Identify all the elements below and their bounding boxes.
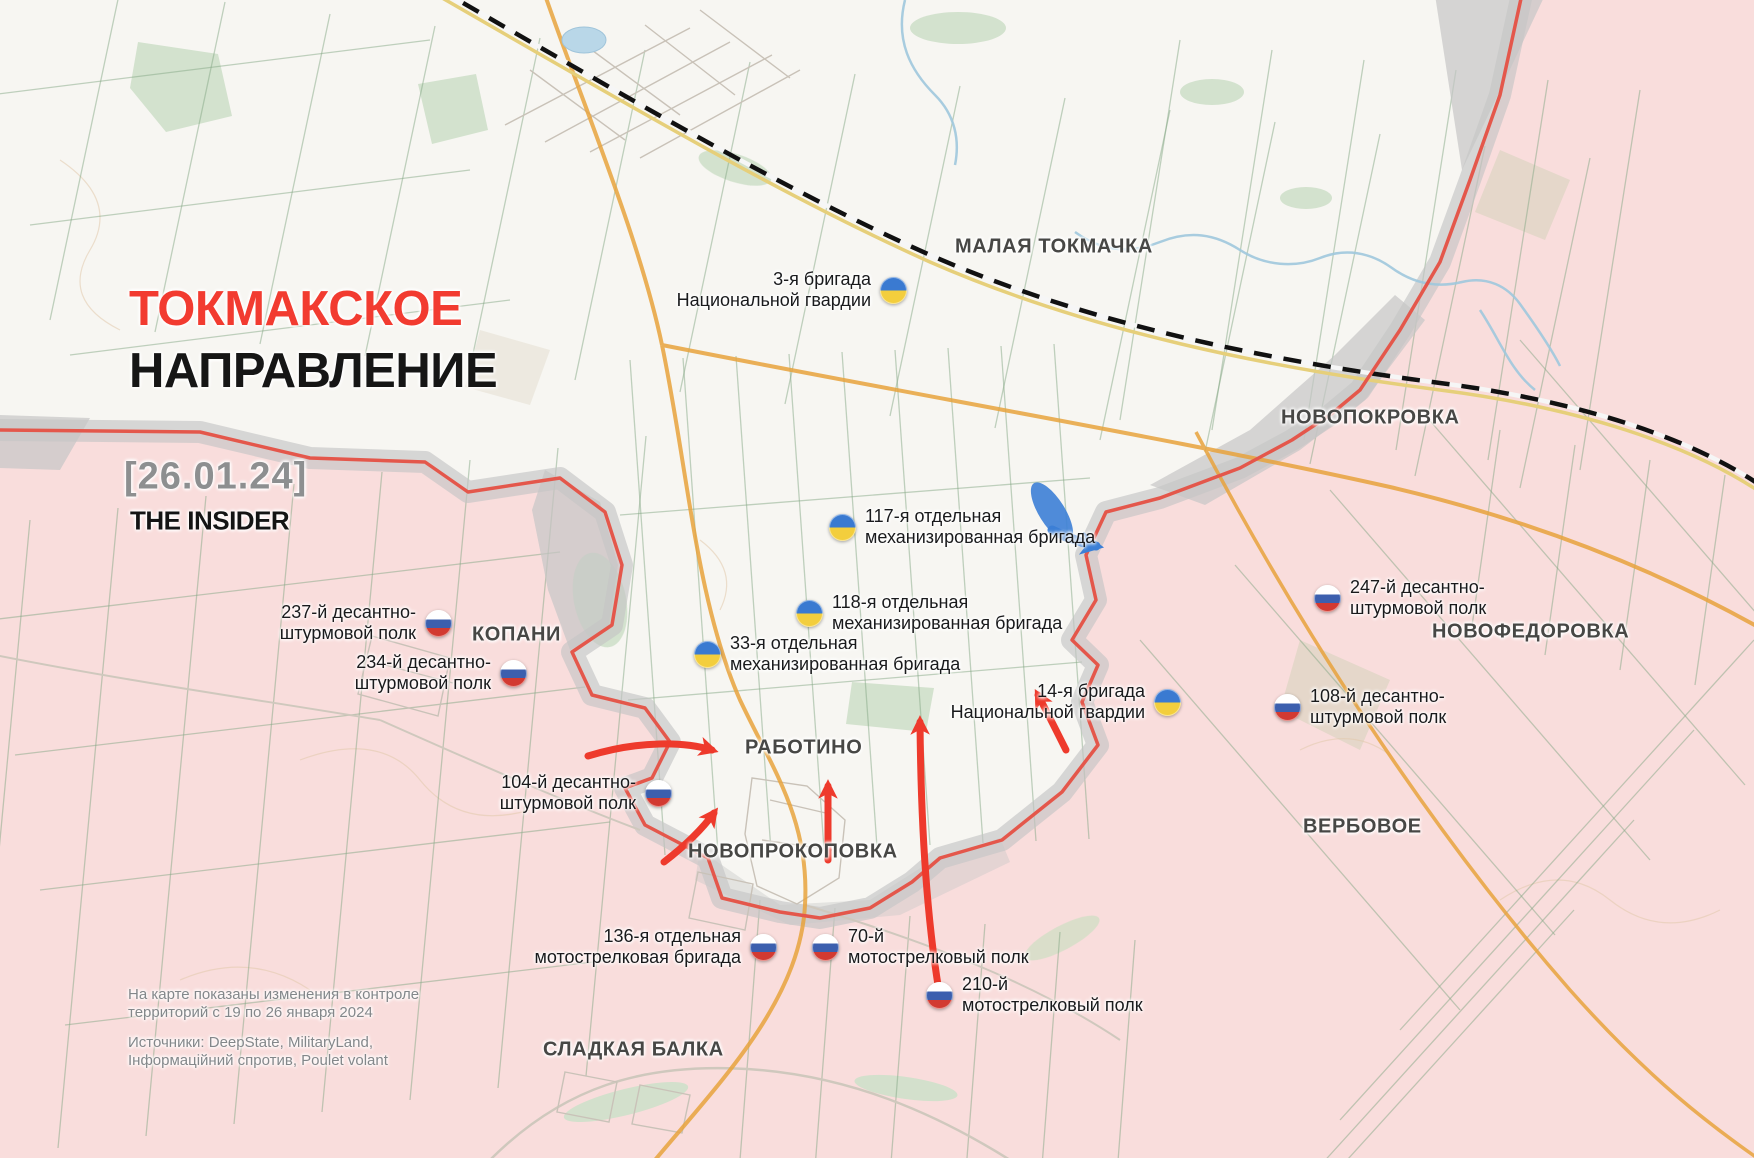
unit-label-14-brigade-national-guard: 14-я бригадаНациональной гвардии [951,681,1181,723]
russia-flag-icon [425,610,452,637]
footer-note-line2: территорий с 19 по 26 января 2024 [128,1004,419,1022]
ukraine-flag-icon [1154,689,1181,716]
field-line [1120,40,1180,420]
unit-label-210-motor-rifle-regiment: 210-ймотострелковый полк [926,974,1143,1016]
unit-label-237-air-assault-regiment: 237-й десантно-штурмовой полк [280,602,452,644]
publisher-logo: THE INSIDER [130,506,289,537]
town-label: СЛАДКАЯ БАЛКА [543,1039,724,1062]
unit-label-text: 117-я отдельнаямеханизированная бригада [865,506,1095,548]
footer-sources-line1: Источники: DeepState, MilitaryLand, [128,1034,419,1052]
unit-label-33-mechanized-brigade: 33-я отдельнаямеханизированная бригада [694,633,960,675]
war-map-tokmak-direction: ТОКМАКСКОЕ НАПРАВЛЕНИЕ [26.01.24] THE IN… [0,0,1754,1158]
unit-label-3-brigade-national-guard: 3-я бригадаНациональной гвардии [677,269,907,311]
unit-label-text: 210-ймотострелковый полк [962,974,1143,1016]
field-line [680,62,750,392]
russia-flag-icon [1314,585,1341,612]
map-title-line1: ТОКМАКСКОЕ [129,278,497,340]
unit-label-70-motor-rifle-regiment: 70-ймотострелковый полк [812,926,1029,968]
field-line [683,358,718,853]
unit-label-104-air-assault-regiment: 104-й десантно-штурмовой полк [500,772,672,814]
russia-flag-icon [1274,694,1301,721]
ukraine-flag-icon [796,600,823,627]
unit-label-text: 33-я отдельнаямеханизированная бригада [730,633,960,675]
russia-flag-icon [926,982,953,1009]
unit-label-136-motor-rifle-brigade: 136-я отдельнаямотострелковая бригада [535,926,778,968]
unit-label-117-mechanized-brigade: 117-я отдельнаямеханизированная бригада [829,506,1095,548]
unit-label-text: 136-я отдельнаямотострелковая бригада [535,926,742,968]
base-map-layer [0,0,1754,1158]
unit-label-234-air-assault-regiment: 234-й десантно-штурмовой полк [355,652,527,694]
town-label: НОВОПОКРОВКА [1281,407,1460,430]
unit-label-text: 234-й десантно-штурмовой полк [355,652,491,694]
field-line [995,98,1065,428]
pond [562,27,606,53]
unit-label-text: 108-й десантно-штурмовой полк [1310,686,1446,728]
unit-label-247-air-assault-regiment: 247-й десантно-штурмовой полк [1314,577,1486,619]
map-date: [26.01.24] [124,456,307,499]
russia-flag-icon [500,660,527,687]
footer-note-line1: На карте показаны изменения в контроле [128,986,419,1004]
field-line [785,74,855,404]
map-title: ТОКМАКСКОЕ НАПРАВЛЕНИЕ [129,278,497,402]
unit-label-108-air-assault-regiment: 108-й десантно-штурмовой полк [1274,686,1446,728]
town-label: РАБОТИНО [745,737,862,760]
map-footer: На карте показаны изменения в контроле т… [128,986,419,1069]
field-line [736,356,771,851]
town-label: ВЕРБОВОЕ [1303,816,1422,839]
unit-label-text: 3-я бригадаНациональной гвардии [677,269,871,311]
town-label: КОПАНИ [472,624,561,647]
ukraine-flag-icon [694,641,721,668]
town-label: НОВОФЕДОРОВКА [1432,621,1629,644]
town-label: МАЛАЯ ТОКМАЧКА [955,236,1153,259]
unit-label-text: 118-я отдельнаямеханизированная бригада [832,592,1062,634]
unit-label-text: 14-я бригадаНациональной гвардии [951,681,1145,723]
unit-label-text: 70-ймотострелковый полк [848,926,1029,968]
unit-label-text: 247-й десантно-штурмовой полк [1350,577,1486,619]
field-line [1100,110,1170,440]
ukraine-flag-icon [880,277,907,304]
town-label: НОВОПРОКОПОВКА [688,841,898,864]
russia-flag-icon [645,780,672,807]
unit-label-118-mechanized-brigade: 118-я отдельнаямеханизированная бригада [796,592,1062,634]
footer-sources-line2: Інформаційний спротив, Poulet volant [128,1052,419,1070]
russia-flag-icon [750,934,777,961]
map-title-line2: НАПРАВЛЕНИЕ [129,340,497,402]
field-line [1205,122,1275,452]
ukraine-flag-icon [829,514,856,541]
russia-flag-icon [812,934,839,961]
unit-label-text: 104-й десантно-штурмовой полк [500,772,636,814]
unit-label-text: 237-й десантно-штурмовой полк [280,602,416,644]
